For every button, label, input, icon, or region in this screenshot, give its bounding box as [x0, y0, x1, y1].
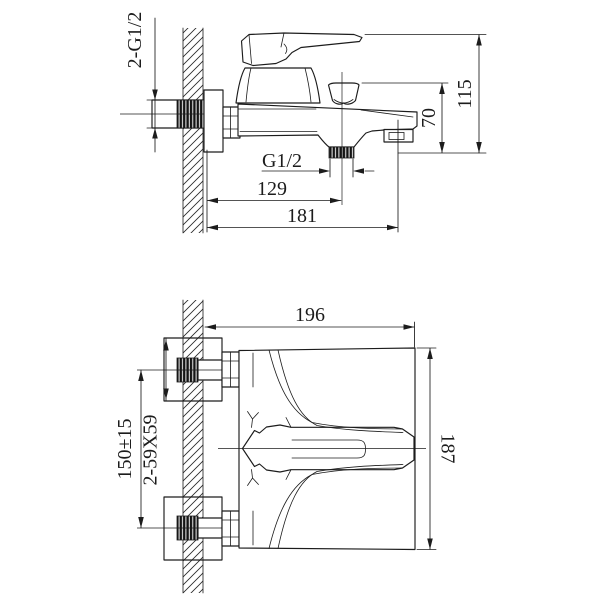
faucet-dimension-drawing: 2-G1/2 G1/2 129 181 70	[0, 0, 600, 600]
outlet-thread-block	[329, 147, 354, 158]
dim-label-spout-drop: 70	[418, 108, 440, 128]
diverter-knob	[329, 83, 360, 104]
aerator	[384, 130, 413, 143]
cartridge-housing	[236, 68, 320, 103]
handle-side	[242, 33, 363, 66]
dim-label-outlet-offset: 129	[257, 178, 287, 200]
dim-label-total-depth-plan: 187	[437, 434, 459, 464]
side-view: 2-G1/2 G1/2 129 181 70	[120, 12, 486, 233]
plan-view: 196 187 150±15 2-59X59	[114, 300, 459, 593]
dim-outlet-thread: G1/2	[262, 150, 374, 177]
dim-label-total-width: 196	[295, 304, 325, 326]
dim-label-outlet-thread: G1/2	[262, 150, 302, 172]
dim-label-escutcheon-size: 2-59X59	[140, 414, 162, 485]
dim-total-width: 196	[205, 304, 415, 347]
technical-drawing-canvas: 2-G1/2 G1/2 129 181 70	[0, 0, 600, 600]
escutcheon-side	[204, 90, 223, 152]
dim-label-inlet-spacing: 150±15	[114, 419, 136, 480]
dim-label-total-height: 115	[454, 79, 476, 108]
faucet-body-plan	[218, 348, 426, 550]
dim-label-inlet-threads: 2-G1/2	[124, 12, 146, 69]
hex-nut-plan-bottom	[222, 511, 239, 546]
wall-section-plan	[183, 300, 203, 593]
hex-nut-plan-top	[222, 352, 239, 387]
wall-section-side	[183, 28, 203, 233]
dim-inlet-threads: 2-G1/2	[124, 12, 163, 152]
dim-total-height: 115	[365, 35, 486, 154]
dim-label-total-depth-side: 181	[287, 205, 317, 227]
